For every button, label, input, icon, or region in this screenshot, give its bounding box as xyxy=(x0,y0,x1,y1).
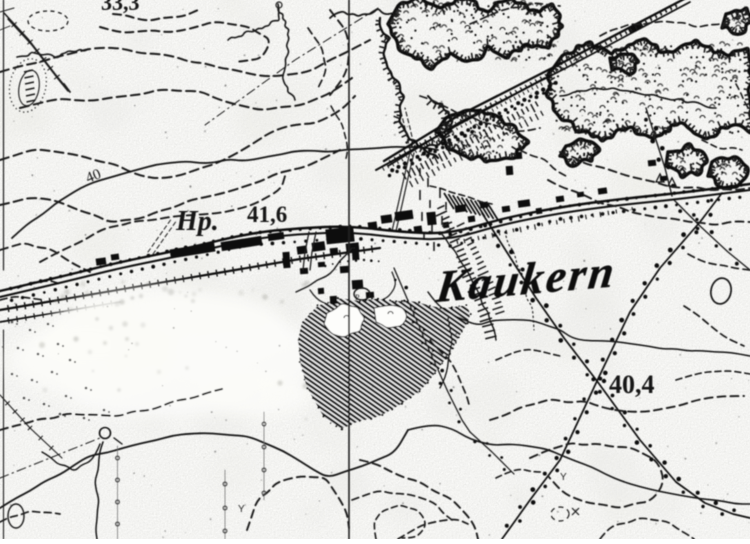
svg-text:40,4: 40,4 xyxy=(609,370,655,399)
svg-text:33,3: 33,3 xyxy=(101,0,140,15)
svg-text:Y: Y xyxy=(238,504,245,515)
svg-text:Y: Y xyxy=(560,472,567,483)
svg-text:41,6: 41,6 xyxy=(247,202,287,227)
svg-text:Hp.: Hp. xyxy=(175,206,219,237)
